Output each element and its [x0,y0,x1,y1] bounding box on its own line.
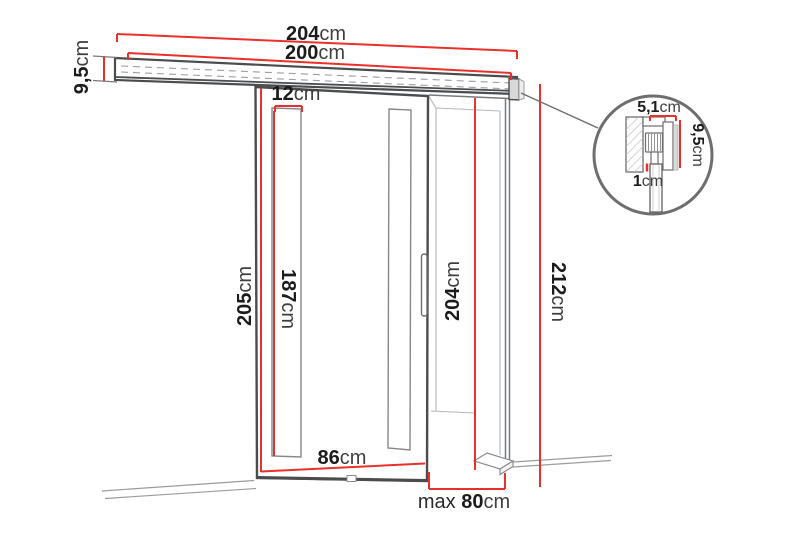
floor-guide [347,476,356,482]
diagram-canvas: 204cm 200cm 9,5cm 12cm 205cm 187cm 204cm… [0,0,800,533]
rail-end-cap [509,79,519,101]
dim-total-height-label: 212cm [547,262,569,322]
floor-line-right [513,456,612,468]
floor-line-left [102,481,256,499]
dim-detail-height-label: 9,5cm [689,123,706,167]
dim-opening-height-label: 204cm [442,261,464,321]
dim-max-opening-width [429,472,505,489]
dim-door-width-label: 86cm [318,447,367,469]
detail-pointer-line [521,93,598,128]
glass-strip-right [388,109,411,450]
roller-hanger [651,152,658,164]
dim-track-inner-label: 200cm [285,42,345,64]
dim-rail-height-label: 9,5cm [71,40,93,94]
dim-door-height-label: 205cm [234,266,256,326]
opening-reveal-lines [429,97,500,456]
sliding-door-diagram: 204cm 200cm 9,5cm 12cm 205cm 187cm 204cm… [0,0,800,533]
dim-glass-height-label: 187cm [277,269,299,329]
dim-glass-width-label: 12cm [272,83,321,105]
dim-detail-gap-label: 1cm [633,173,663,190]
wall-hatch-fill [626,117,643,172]
rail-end-face [519,79,524,100]
door-handle [422,254,428,316]
threshold-step [474,453,513,475]
dim-detail-width-label: 5,1cm [637,99,681,116]
dim-max-opening-width-label: max 80cm [418,491,510,513]
